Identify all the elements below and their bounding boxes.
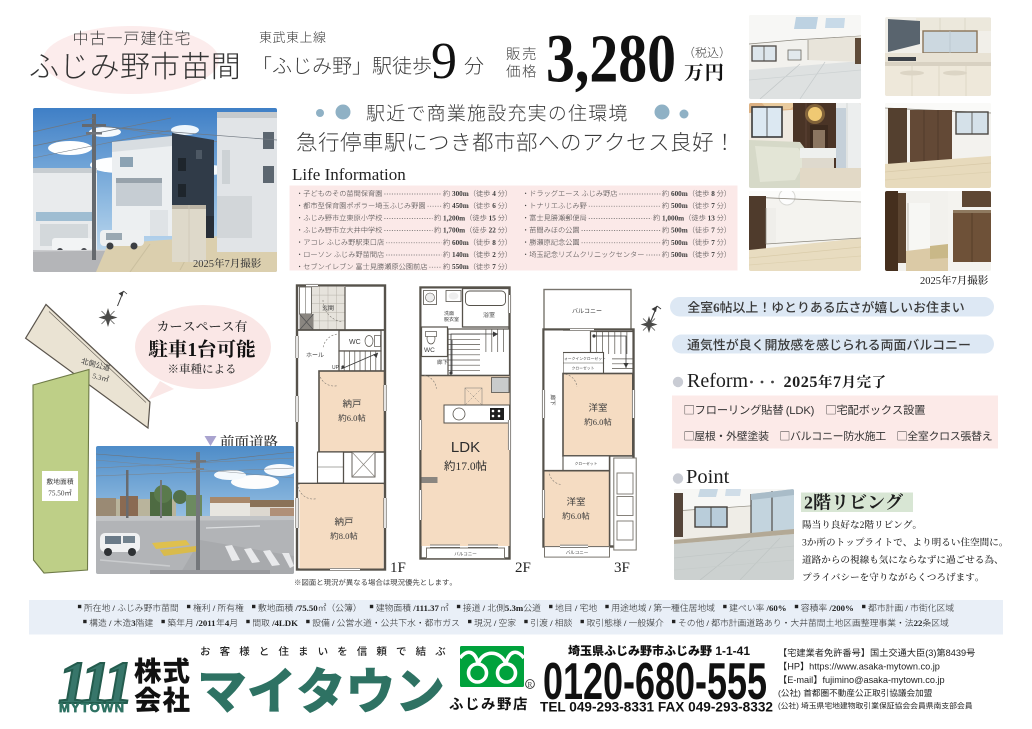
svg-text:4: 4 <box>225 618 230 628</box>
svg-text:(LDK): (LDK) <box>786 405 815 417</box>
svg-text:/: / <box>647 603 654 613</box>
svg-text:E-mail: E-mail <box>787 675 813 685</box>
svg-text:/: / <box>107 618 114 628</box>
svg-text:22: 22 <box>914 618 923 628</box>
svg-text:7: 7 <box>709 251 716 259</box>
svg-text:/: / <box>211 603 218 613</box>
svg-text:2: 2 <box>804 493 813 513</box>
svg-text:(3): (3) <box>925 648 936 658</box>
svg-text:7: 7 <box>952 276 957 287</box>
svg-text:450m: 450m <box>450 202 469 210</box>
svg-text:/: / <box>548 618 555 628</box>
svg-text:WC: WC <box>349 339 361 346</box>
svg-text:2025: 2025 <box>784 373 818 391</box>
svg-text:3F: 3F <box>614 560 630 576</box>
svg-text:75.50: 75.50 <box>48 490 65 498</box>
svg-text:https://www.asaka-mytown.co.jp: https://www.asaka-mytown.co.jp <box>809 662 940 672</box>
svg-text:1F: 1F <box>390 560 406 576</box>
svg-text:): ) <box>798 688 803 698</box>
svg-text:15: 15 <box>487 214 498 222</box>
svg-text:TEL 049-293-8331 FAX 049-293-8: TEL 049-293-8331 FAX 049-293-8332 <box>540 700 773 715</box>
svg-text:2: 2 <box>860 520 865 531</box>
svg-text:6.0: 6.0 <box>347 413 358 423</box>
svg-text:/: / <box>903 603 910 613</box>
svg-text:WC: WC <box>424 347 435 354</box>
svg-text:7: 7 <box>833 373 842 391</box>
svg-text:600m: 600m <box>669 190 688 198</box>
svg-text:/60%: /60% <box>764 603 786 613</box>
svg-text:6: 6 <box>490 202 497 210</box>
svg-text:6.0: 6.0 <box>593 417 604 427</box>
svg-text:2025: 2025 <box>920 276 941 287</box>
svg-text:8: 8 <box>490 239 497 247</box>
svg-text:/4LDK: /4LDK <box>270 618 298 628</box>
svg-text:/: / <box>704 618 711 628</box>
svg-text:(: ( <box>778 702 781 711</box>
svg-text:LDK: LDK <box>451 439 480 456</box>
svg-text:Reform: Reform <box>687 370 749 392</box>
svg-text:7: 7 <box>709 239 716 247</box>
svg-text:7: 7 <box>709 227 716 235</box>
svg-text:Point: Point <box>686 466 730 488</box>
svg-text:/2011: /2011 <box>194 618 216 628</box>
svg-text:500m: 500m <box>669 251 688 259</box>
svg-text:2F: 2F <box>515 560 531 576</box>
svg-text:1,000m: 1,000m <box>660 214 684 222</box>
svg-text:): ) <box>796 702 801 711</box>
svg-text:4: 4 <box>490 190 497 198</box>
svg-text:2: 2 <box>490 251 497 259</box>
svg-text:500m: 500m <box>669 227 688 235</box>
svg-text:6.0: 6.0 <box>571 511 582 521</box>
svg-text:/75.50: /75.50 <box>293 603 318 613</box>
svg-text:3: 3 <box>131 618 136 628</box>
svg-text:fujimino@asaka-mytown.co.jp: fujimino@asaka-mytown.co.jp <box>822 675 944 685</box>
svg-text:Life Information: Life Information <box>292 165 406 184</box>
svg-text:7: 7 <box>225 259 230 270</box>
svg-text:300m: 300m <box>450 190 469 198</box>
svg-text:3: 3 <box>802 538 807 549</box>
svg-text:/111.37: /111.37 <box>411 603 439 613</box>
svg-text:/: / <box>492 618 499 628</box>
svg-text:MYTOWN: MYTOWN <box>59 700 125 715</box>
svg-text:500m: 500m <box>669 202 688 210</box>
svg-text:500m: 500m <box>669 239 688 247</box>
svg-text:17.0: 17.0 <box>455 461 475 473</box>
svg-text:22: 22 <box>487 227 498 235</box>
svg-text:UP: UP <box>332 365 340 371</box>
svg-text:2025: 2025 <box>193 259 214 270</box>
svg-text:8.0: 8.0 <box>339 531 350 541</box>
svg-text:140m: 140m <box>450 251 469 259</box>
svg-text:R: R <box>528 681 533 689</box>
svg-text:/: / <box>110 603 117 613</box>
svg-text:600m: 600m <box>450 239 469 247</box>
svg-text:7: 7 <box>709 202 716 210</box>
svg-text:1,200m: 1,200m <box>441 214 465 222</box>
svg-text:1: 1 <box>187 340 197 361</box>
svg-text:7: 7 <box>490 263 497 271</box>
svg-text:(: ( <box>778 688 781 698</box>
svg-text:5.3m: 5.3m <box>505 603 524 613</box>
svg-text:/: / <box>573 603 580 613</box>
svg-text:8: 8 <box>709 190 716 198</box>
svg-text:13: 13 <box>706 214 717 222</box>
svg-text:/: / <box>480 603 487 613</box>
svg-text:3,280: 3,280 <box>546 21 676 97</box>
svg-text:/: / <box>330 618 337 628</box>
svg-text:9: 9 <box>431 33 457 90</box>
svg-text:/200%: /200% <box>827 603 854 613</box>
svg-text:550m: 550m <box>450 263 469 271</box>
svg-text:1,700m: 1,700m <box>441 227 465 235</box>
svg-text:8439: 8439 <box>946 648 966 658</box>
svg-text:/: / <box>622 618 629 628</box>
svg-text:6: 6 <box>713 301 720 315</box>
svg-text:HP: HP <box>787 662 800 672</box>
